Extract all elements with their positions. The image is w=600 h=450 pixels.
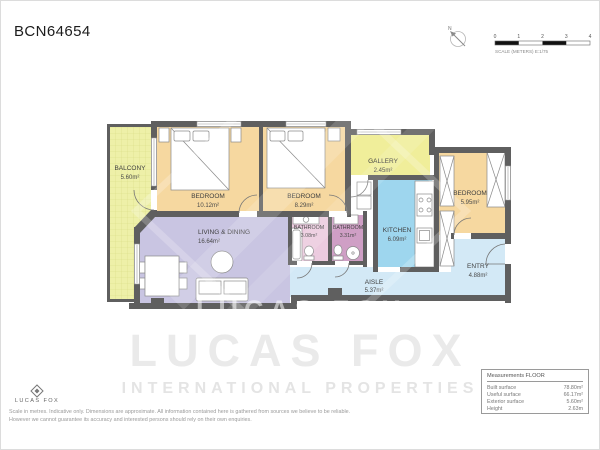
measurement-label: Height	[487, 406, 502, 413]
bed-icon	[159, 128, 241, 190]
kitchen-counter-icon	[415, 181, 434, 267]
measurement-label: Useful surface	[487, 392, 521, 399]
compass-and-scale: N 0 1 2 3 4 SCALE (METERS) E:1/75	[441, 19, 597, 65]
room-area-kitchen: 6.09m²	[388, 237, 407, 243]
measurement-label: Built surface	[487, 385, 516, 392]
table-row: Useful surface 66.17m²	[487, 392, 583, 399]
room-area-balcony: 5.60m²	[121, 175, 140, 181]
scale-bar: 0 1 2 3 4 SCALE (METERS) E:1/75	[494, 34, 592, 54]
room-area-bathroom-1: 3.08m²	[301, 233, 318, 239]
scale-tick: 1	[517, 34, 520, 40]
disclaimer-line-2: However we cannot guarantee its accuracy…	[9, 417, 252, 423]
scale-label: SCALE (METERS) E:1/75	[495, 49, 549, 54]
hall-closet-icon	[357, 182, 371, 209]
measurement-value: 2.63m	[568, 406, 583, 413]
sofa-icon	[196, 278, 248, 301]
room-area-aisle: 5.37m²	[365, 288, 384, 294]
table-row: Built surface 78.80m²	[487, 385, 583, 392]
table-row: Height 2.63m	[487, 406, 583, 413]
measurement-label: Exterior surface	[487, 399, 524, 406]
floor-plan-page: BCN64654 N 0 1 2 3 4 SCALE (METERS) E:1/…	[0, 0, 600, 450]
measurement-value: 5.60m²	[567, 399, 584, 406]
table-row: Exterior surface 5.60m²	[487, 399, 583, 406]
room-area-gallery: 2.45m²	[374, 168, 393, 174]
scale-tick: 0	[494, 34, 497, 40]
room-label-kitchen: KITCHEN	[383, 227, 412, 234]
room-label-bedroom-2: BEDROOM	[287, 193, 321, 200]
room-area-living: 16.64m²	[198, 239, 220, 245]
measurements-table: Measurements FLOOR Built surface 78.80m²…	[481, 369, 589, 414]
room-label-bathroom-1: BATHROOM	[294, 225, 324, 231]
scale-tick: 4	[589, 34, 592, 40]
room-area-bedroom-1: 10.12m²	[197, 203, 219, 209]
page-title: BCN64654	[14, 23, 91, 40]
measurement-value: 66.17m²	[564, 392, 583, 399]
room-label-aisle: AISLE	[365, 279, 384, 286]
room-label-gallery: GALLERY	[368, 158, 399, 165]
footer-logo-text: LUCAS FOX	[13, 398, 61, 404]
north-label: N	[448, 26, 452, 32]
lucas-fox-logo-icon	[30, 384, 44, 398]
room-label-bedroom-3: BEDROOM	[453, 190, 487, 197]
scale-tick: 2	[541, 34, 544, 40]
disclaimer-line-1: Scale in metres. Indicative only. Dimens…	[9, 409, 350, 415]
room-label-bathroom-2: BATHROOM	[333, 225, 363, 231]
measurement-value: 78.80m²	[564, 385, 583, 392]
measurements-title: Measurements FLOOR	[487, 373, 583, 382]
north-arrow-icon: N	[448, 26, 466, 47]
room-area-entry: 4.88m²	[469, 273, 488, 279]
room-label-entry: ENTRY	[467, 263, 490, 270]
room-area-bedroom-2: 8.29m²	[295, 203, 314, 209]
room-area-bedroom-3: 5.95m²	[461, 200, 480, 206]
room-area-bathroom-2: 3.31m²	[340, 233, 357, 239]
floor-plan: BALCONY 5.60m² BEDROOM 10.12m² BEDROOM 8…	[91, 101, 531, 321]
scale-tick: 3	[565, 34, 568, 40]
room-label-bedroom-1: BEDROOM	[191, 193, 225, 200]
round-table-icon	[211, 251, 233, 273]
room-label-balcony: BALCONY	[114, 165, 146, 172]
room-label-living: LIVING & DINING	[198, 229, 250, 236]
